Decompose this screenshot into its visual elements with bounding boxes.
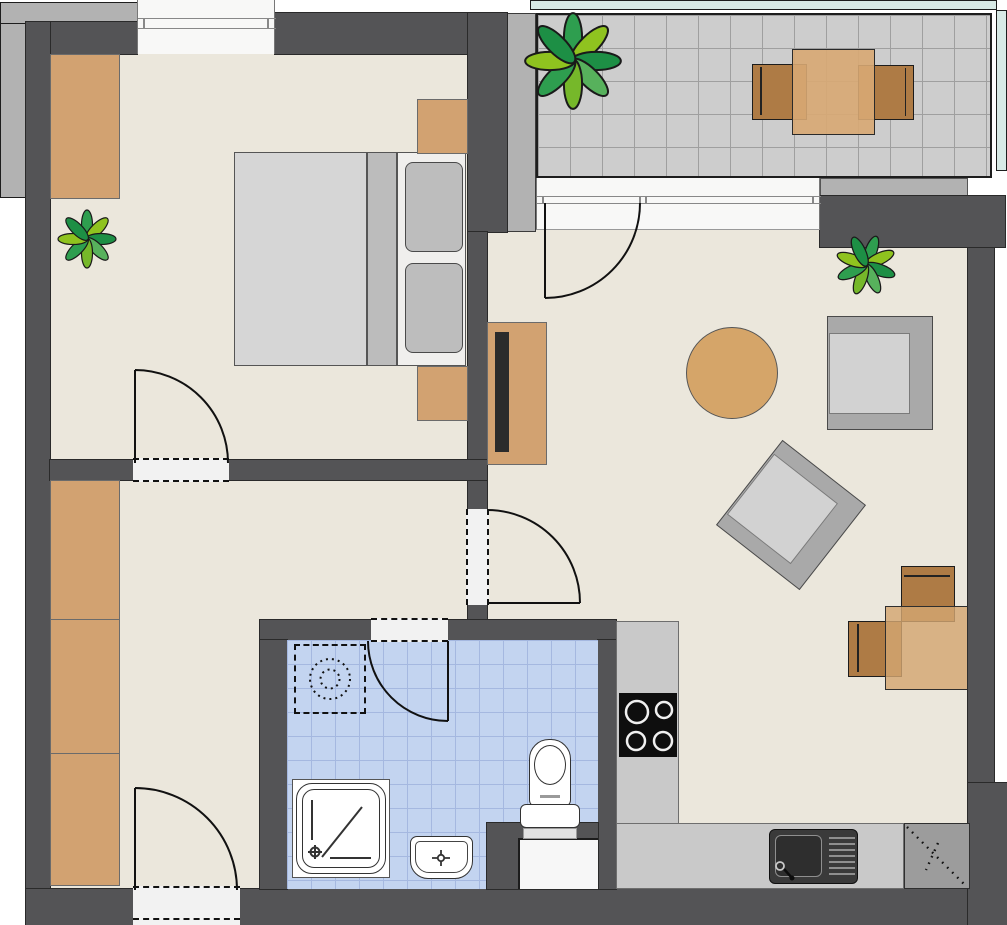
window-frame-line	[537, 203, 821, 204]
window-tick	[639, 196, 641, 203]
tv	[495, 332, 509, 452]
hallway-wardrobe-3	[50, 753, 120, 886]
kitchen-counter-bottom	[616, 823, 904, 889]
bed-mattress	[234, 152, 367, 366]
toilet-seat	[534, 745, 566, 785]
bed-blanket-strip	[367, 152, 397, 366]
outer-structure-top	[0, 2, 139, 24]
window-tick	[812, 196, 814, 203]
wall-right-lower	[968, 783, 1007, 925]
bed-pillow-top	[405, 162, 463, 252]
window-frame-line	[138, 18, 276, 19]
corner-cabinet	[904, 823, 970, 889]
window-tick	[267, 18, 269, 28]
shower-tray-inner	[302, 789, 380, 868]
kitchen-sink-drainer	[829, 837, 855, 879]
armchair-cushion	[829, 333, 910, 414]
chair-backrest-line	[905, 68, 907, 116]
outer-structure-left	[0, 2, 28, 198]
window-tick	[645, 196, 647, 203]
wall-bathroom-right	[598, 640, 616, 889]
desk	[885, 606, 968, 690]
wall-under-balcony	[820, 196, 1005, 247]
cooktop	[619, 693, 677, 757]
bedroom-door-opening	[133, 458, 229, 482]
wall-bedroom-hallway	[50, 460, 487, 480]
wall-bedroom-balcony	[468, 13, 507, 232]
hallway-wardrobe-1	[50, 480, 120, 621]
entry-door-opening	[133, 886, 240, 925]
armchair	[827, 316, 933, 430]
wall-left	[26, 22, 50, 925]
toilet-pedestal	[523, 828, 577, 839]
entry-threshold-line	[133, 918, 240, 920]
wall-right-upper	[968, 247, 994, 783]
window-frame-line	[537, 196, 821, 197]
kitchen-sink-basin	[775, 835, 822, 877]
window-frame-line	[138, 28, 276, 29]
chair-backrest-line	[760, 67, 762, 115]
bedroom-window	[137, 0, 275, 54]
nightstand-bottom	[417, 366, 468, 421]
hallway-wardrobe-2	[50, 619, 120, 755]
chair-backrest-line	[857, 624, 859, 672]
toilet-niche	[518, 838, 598, 889]
chair-backrest-line	[904, 575, 950, 577]
bedroom-wardrobe	[50, 54, 120, 199]
coffee-table-round	[686, 327, 778, 419]
toilet-tank	[520, 804, 580, 828]
window-tick	[143, 18, 145, 28]
balcony-parapet	[820, 178, 968, 196]
balcony-pillar	[507, 13, 536, 232]
bed-pillow-bottom	[405, 263, 463, 353]
washbasin-inner	[415, 841, 468, 873]
living-room-door-opening	[466, 509, 489, 605]
balcony-railing-right	[996, 10, 1007, 171]
floor-plan	[0, 0, 1007, 925]
balcony-railing-top	[530, 0, 997, 10]
living-room-window	[536, 178, 820, 230]
bathroom-door-opening	[371, 618, 448, 642]
toilet-seat-line	[540, 795, 560, 798]
wall-bathroom-left	[260, 640, 287, 889]
balcony-dining-table	[792, 49, 875, 135]
window-tick	[542, 196, 544, 203]
nightstand-top	[417, 99, 468, 154]
washing-machine-placeholder	[294, 644, 366, 714]
